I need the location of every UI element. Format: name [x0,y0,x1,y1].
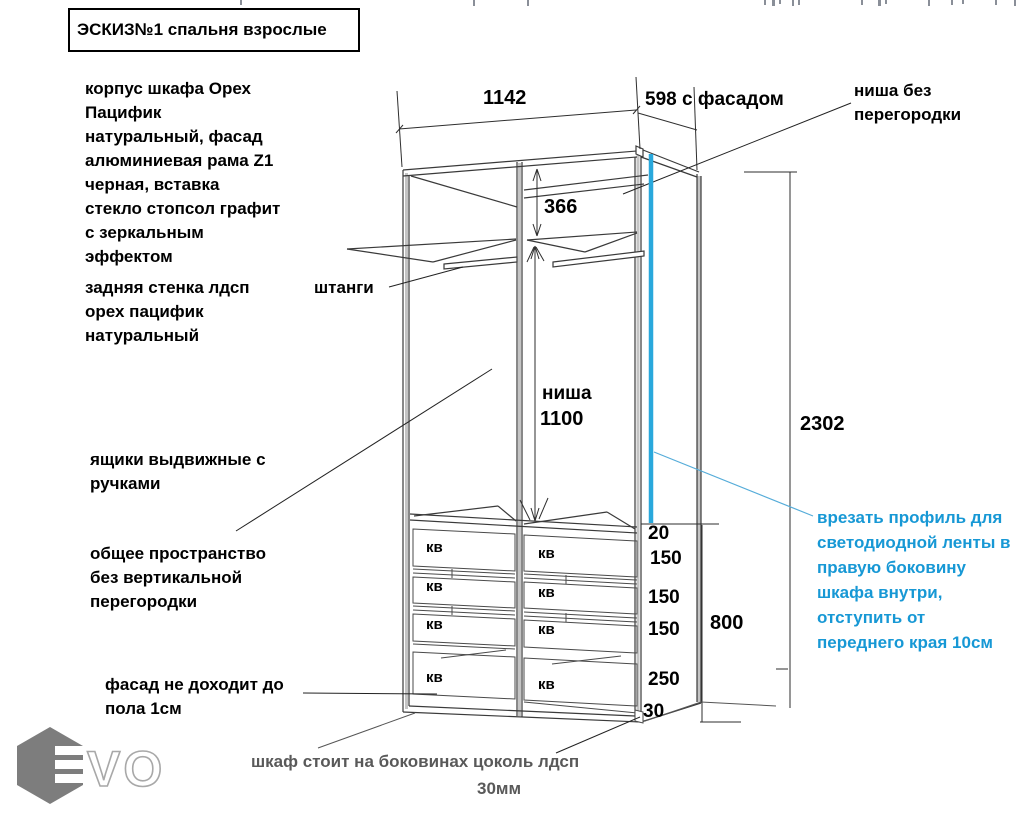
note-facade-gap: фасад не доходит до пола 1см [105,673,284,721]
dim-drawer-unit-height: 800 [710,613,743,633]
dim-right-1: 150 [650,549,682,568]
note-base-thickness: 30мм [477,777,521,801]
dim-niche-label: ниша [542,384,592,403]
drawer-fronts [413,529,643,723]
drawer-label: кв [426,540,443,555]
drawer-label: кв [538,585,555,600]
note-led: врезать профиль для светодиодной ленты в… [817,505,1011,655]
evo-logo: VO [17,727,165,804]
dim-niche-height: 1100 [540,409,583,429]
dim-depth: 598 с фасадом [645,90,784,109]
logo-e-bars [55,746,86,783]
drawer-label: кв [538,546,555,561]
drawer-label: кв [426,617,443,632]
drawer-label: кв [426,579,443,594]
dim-total-height: 2302 [800,414,845,434]
drawer-label: кв [426,670,443,685]
ruler-ticks [240,0,1016,6]
note-corpus: корпус шкафа Орех Пацифик натуральный, ф… [85,77,280,269]
sketch-canvas: VO ЭСКИЗ№1 спальня взрослые корпус шкафа… [0,0,1024,821]
plinth-corner [635,710,643,723]
note-shared-space: общее пространство без вертикальной пере… [90,542,266,614]
dim-top-section: 366 [544,197,577,217]
label-rods: штанги [314,276,374,300]
note-back-wall: задняя стенка лдсп орех пацифик натураль… [85,276,250,348]
rod-left [444,257,517,269]
floor-lines [318,702,776,748]
dim-right-2: 150 [648,588,680,607]
note-niche: ниша без перегородки [854,79,961,127]
page-title: ЭСКИЗ№1 спальня взрослые [77,20,327,40]
rod-right [553,251,644,267]
note-base: шкаф стоит на боковинах цоколь лдсп [251,750,579,774]
dim-right-3: 150 [648,620,680,639]
dim-right-5: 30 [643,702,664,721]
led-leader-line [654,452,813,516]
logo-text: VO [87,741,165,797]
dim-right-4: 250 [648,670,680,689]
note-drawers: ящики выдвижные с ручками [90,448,266,496]
drawer-label: кв [538,677,555,692]
dim-right-0: 20 [648,524,669,543]
title-box: ЭСКИЗ№1 спальня взрослые [68,8,360,52]
dim-width-top: 1142 [483,88,526,108]
drawer-label: кв [538,622,555,637]
